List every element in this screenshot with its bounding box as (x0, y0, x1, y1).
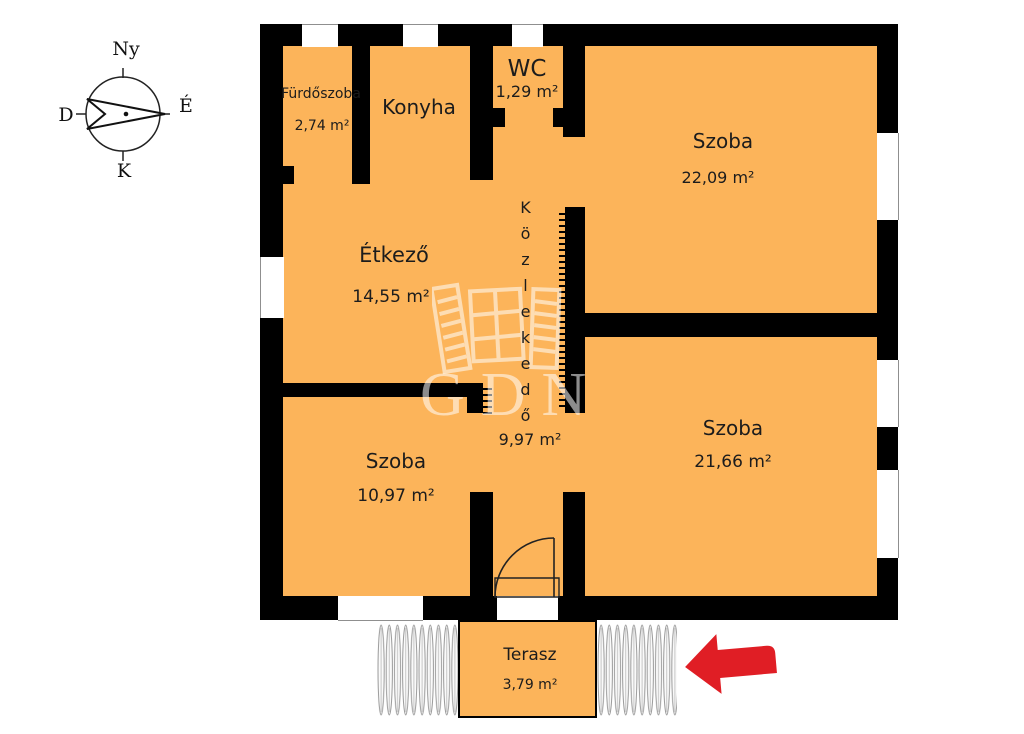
room-name-terasz: Terasz (503, 645, 556, 665)
window-furdoszoba (302, 24, 338, 47)
compass-west-label: Ny (112, 38, 140, 60)
outer-wall-top (260, 24, 898, 46)
room-name-wc: WC (508, 56, 547, 82)
compass-east-label: K (117, 160, 132, 182)
outer-wall-left (260, 24, 283, 620)
wall-wc-door-jamb-left (493, 108, 505, 127)
wall-between-right-rooms (565, 313, 877, 337)
room-area-szoba-right: 21,66 m² (694, 452, 771, 472)
floor-plan-canvas: Ny É D K (0, 0, 1024, 734)
room-name-kozlekedo: Közlekedő (516, 198, 535, 438)
wall-wc-right (563, 46, 585, 137)
hatch-strip-left (377, 622, 458, 718)
wall-furdoszoba-door-jamb (278, 166, 294, 184)
window-szoba-right-1 (877, 360, 899, 427)
wall-furdoszoba-konyha (352, 46, 370, 184)
room-area-furdoszoba: 2,74 m² (295, 118, 350, 134)
compass-rose: Ny É D K (48, 28, 208, 183)
window-szoba-right-2 (877, 470, 899, 558)
compass-center-dot (124, 112, 129, 117)
window-szoba-left (338, 596, 423, 621)
window-szoba-top (877, 133, 899, 220)
room-name-furdoszoba: Fürdőszoba (281, 86, 361, 102)
wall-konyha-kozlekedo (470, 46, 493, 180)
room-name-konyha: Konyha (382, 95, 456, 119)
room-name-szoba-right: Szoba (703, 416, 763, 440)
room-area-szoba-left: 10,97 m² (357, 486, 434, 506)
entrance-arrow-icon (680, 626, 781, 702)
room-area-terasz: 3,79 m² (503, 677, 558, 693)
room-area-kozlekedo: 9,97 m² (499, 430, 562, 449)
compass-south-label: D (58, 104, 73, 126)
room-name-etkezo: Étkező (359, 243, 429, 267)
door-swing-terrace (490, 530, 570, 600)
gdn-watermark-text: GDN (420, 360, 602, 431)
room-name-szoba-top: Szoba (693, 129, 753, 153)
window-wc (512, 24, 543, 47)
terrace-area (458, 620, 597, 718)
hatch-strip-right (597, 622, 677, 718)
window-etkezo (260, 257, 284, 318)
room-area-wc: 1,29 m² (496, 82, 559, 101)
room-name-szoba-left: Szoba (366, 449, 426, 473)
room-area-etkezo: 14,55 m² (352, 287, 429, 307)
window-konyha (403, 24, 438, 47)
wall-wc-door-jamb-right (553, 108, 563, 127)
room-area-szoba-top: 22,09 m² (682, 168, 755, 187)
compass-north-label: É (179, 94, 193, 117)
